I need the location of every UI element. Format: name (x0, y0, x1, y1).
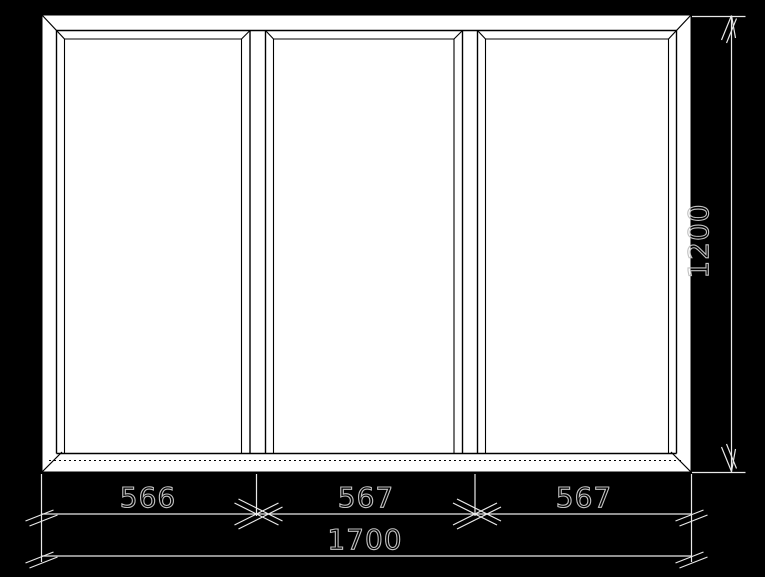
window-elevation-svg: 566 567 567 1700 1200 (0, 0, 765, 577)
dim-arrow-up-icon (722, 16, 737, 44)
window-frame (42, 15, 692, 473)
label-total-width: 1700 (327, 523, 402, 556)
label-panel-width-3: 567 (556, 481, 612, 514)
label-panel-width-2: 567 (338, 481, 394, 514)
frame-outer-rect (42, 15, 692, 473)
label-height: 1200 (682, 203, 715, 278)
label-panel-width-1: 566 (120, 481, 176, 514)
drawing-canvas: 566 567 567 1700 1200 (0, 0, 765, 577)
dim-arrow-down-icon (722, 444, 737, 472)
